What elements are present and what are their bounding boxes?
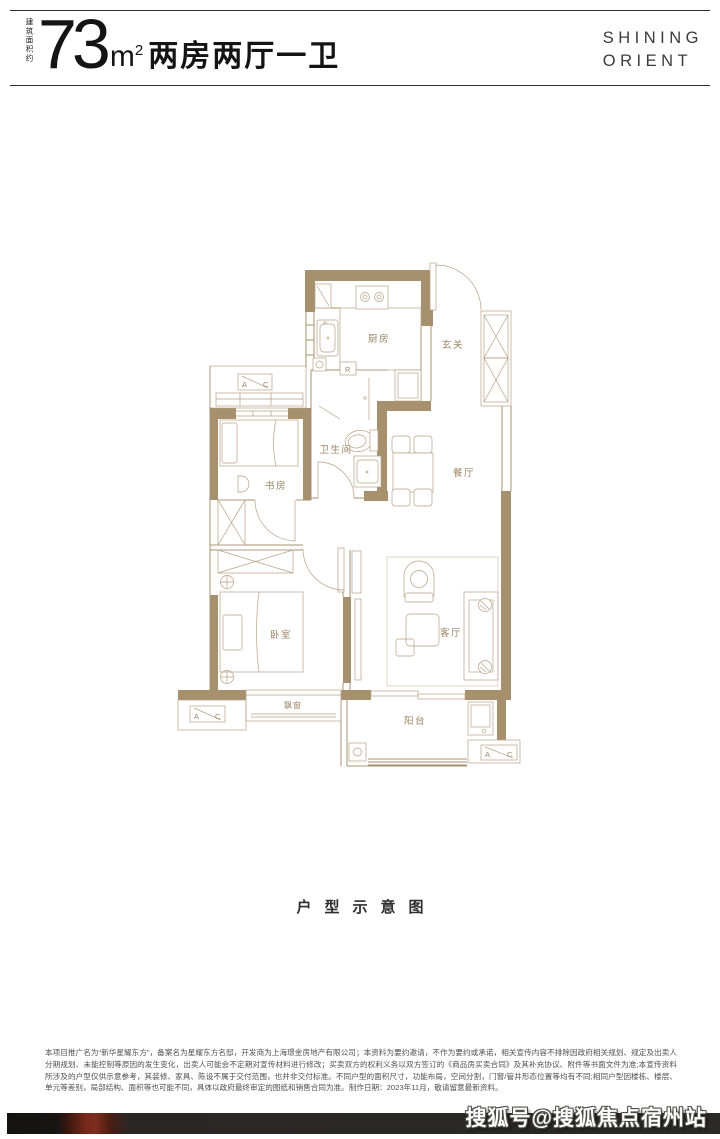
unit-m: m	[110, 40, 135, 73]
dining-furniture	[392, 436, 433, 506]
room-label-balcony: 阳台	[404, 715, 426, 727]
ac-platform-right: A C	[468, 740, 520, 763]
area-prefix-label: 建筑面积约	[24, 18, 35, 66]
room-label-bay: 飘窗	[284, 700, 302, 710]
brand-line2: ORIENT	[603, 50, 703, 73]
layout-text: 两房两厅一卫	[148, 42, 340, 72]
floor-plan: R	[168, 248, 524, 768]
area-unit: m2	[110, 42, 143, 72]
disclaimer-text: 本项目推广名为“新华星耀东方”，备案名为星耀东方名邸，开发商为上海璟金房地产有限…	[45, 1047, 677, 1094]
room-label-living: 客厅	[440, 627, 462, 639]
header-rule-bottom	[10, 85, 710, 86]
ac-marker-c: C	[263, 380, 269, 389]
ac-marker-a: A	[485, 750, 490, 759]
ac-marker-c: C	[215, 712, 221, 721]
room-label-bedroom: 卧室	[270, 629, 292, 641]
bedroom-furniture	[218, 548, 344, 684]
room-label-bath: 卫生间	[319, 444, 352, 456]
fridge-marker: R	[345, 365, 351, 374]
brand-logo: SHINING ORIENT	[603, 27, 703, 73]
ac-marker-a: A	[194, 712, 199, 721]
living-furniture	[352, 551, 498, 686]
ac-marker-a: A	[242, 380, 247, 389]
entry-door	[430, 263, 481, 310]
bathroom-fixtures	[318, 428, 381, 498]
room-label-dining: 餐厅	[453, 467, 475, 479]
ac-platform-left: A C	[178, 700, 246, 730]
room-label-study: 书房	[265, 480, 287, 492]
plan-caption: 户型示意图	[0, 896, 720, 917]
room-label-entry: 玄关	[442, 339, 464, 351]
duct-shaft-left	[218, 500, 245, 545]
room-label-kitchen: 厨房	[368, 333, 390, 345]
ac-marker-c: C	[507, 750, 513, 759]
header-rule-top	[10, 10, 710, 11]
brand-line1: SHINING	[603, 27, 703, 50]
area-headline: 建筑面积约 73 m2 两房两厅一卫	[24, 14, 340, 74]
watermark-text: 搜狐号@搜狐焦点宿州站	[466, 1102, 707, 1132]
unit-sup: 2	[135, 42, 143, 59]
area-number: 73	[38, 14, 106, 74]
floorplan-poster: { "header": { "area_prefix": "建筑面积约", "a…	[0, 0, 720, 1139]
duct-shaft-right	[481, 311, 511, 406]
